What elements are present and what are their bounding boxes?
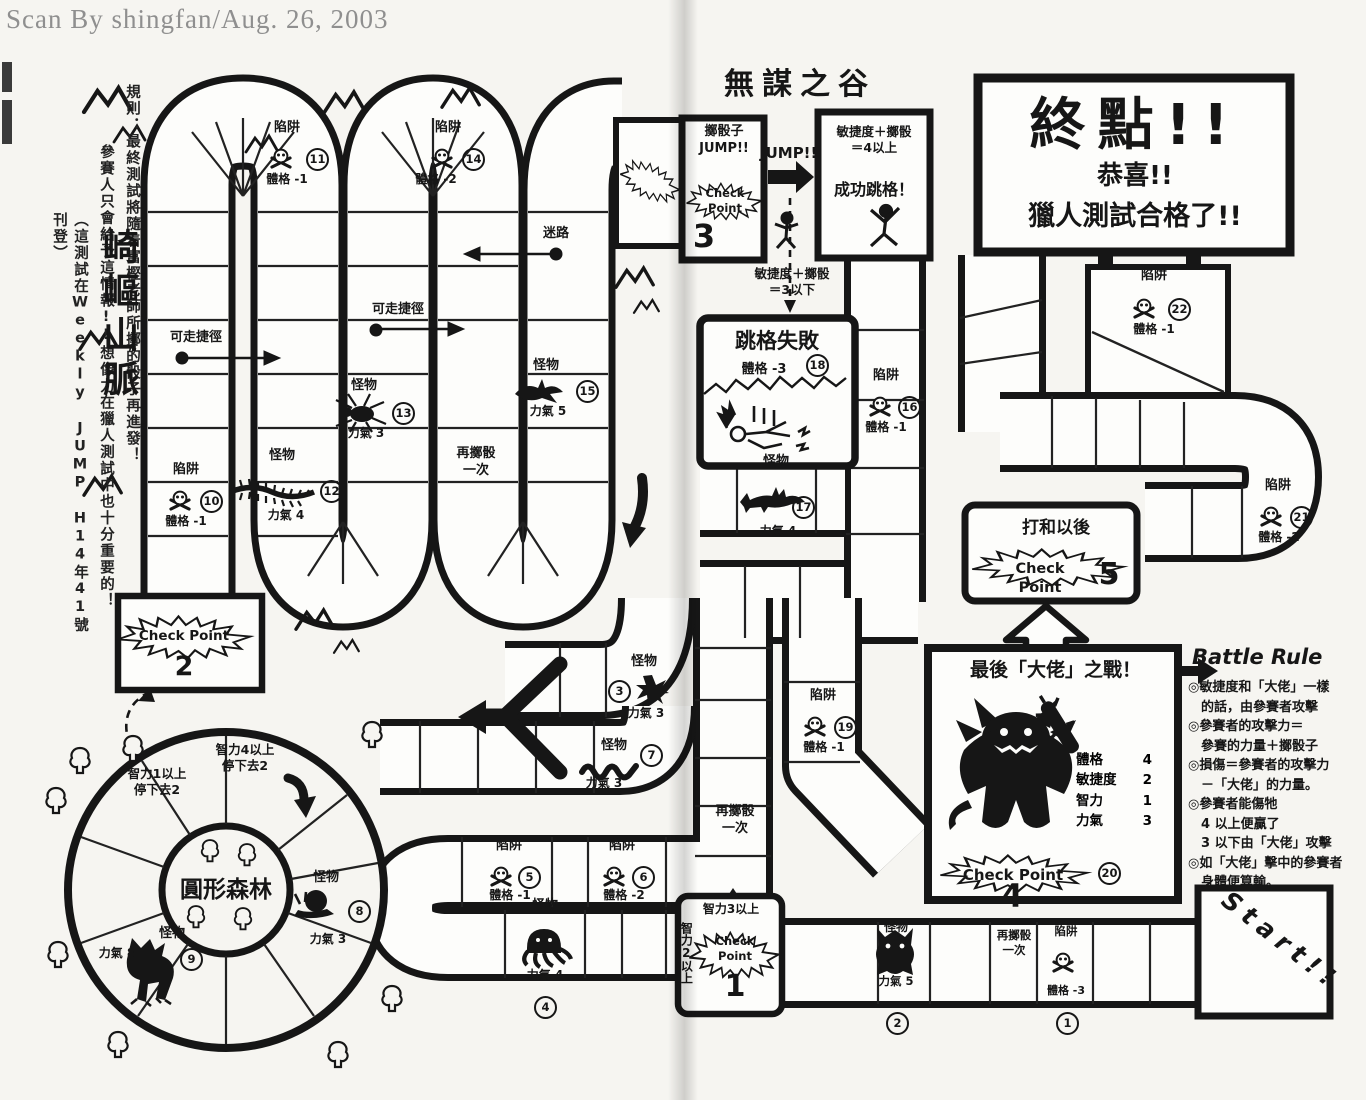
jump-success-condition: 敏捷度＋擲骰 ＝4以上 (820, 124, 928, 156)
goal-congrats: 恭喜!! (990, 160, 1280, 193)
monster-7-power: 力氣 3 (560, 776, 648, 791)
trap-19-label: 陷阱 (782, 688, 864, 705)
trap-10-label: 陷阱 (142, 462, 230, 479)
region-mountain-title: 崎嶇山脈 (94, 228, 140, 404)
square-number-19: 19 (834, 716, 857, 739)
square-number-5: 5 (518, 866, 541, 889)
trap-6-effect: 體格 -2 (582, 888, 666, 903)
reroll-label-2: 再擲骰 一次 (696, 804, 774, 837)
region-valley-title: 無謀之谷 (690, 66, 910, 104)
monster-8-label: 怪物 (284, 870, 368, 887)
trap-1-effect: 體格 -3 (1036, 984, 1096, 998)
boss-stat-key: 敏捷度 (1076, 770, 1117, 790)
battle-rule-body: ◎敏捷度和「大佬」一樣 的話，由參賽者攻擊 ◎參賽者的攻擊力＝ 參賽的力量＋擲骰… (1188, 678, 1366, 893)
square-number-2: 2 (886, 1012, 909, 1035)
goal-passed: 獵人測試合格了!! (985, 200, 1285, 235)
monster-17-label: 怪物 (734, 454, 818, 471)
shortcut-label-2: 可走捷徑 (352, 302, 444, 319)
rules-line-3: （這測試在Weekly JUMP H14年41號刊登） (49, 84, 91, 644)
cp5-label: Check Point (996, 560, 1084, 597)
monster-12-power: 力氣 4 (228, 508, 344, 523)
trap-22-label: 陷阱 (1102, 268, 1206, 285)
reroll-label-1: 再擲骰 一次 (430, 446, 522, 479)
monster-2-power: 力氣 5 (864, 974, 928, 989)
boss-stat-key: 智力 (1076, 791, 1103, 811)
cp4-number: 4 (990, 876, 1034, 917)
square-number-4: 4 (534, 996, 557, 1019)
trap-10-effect: 體格 -1 (144, 514, 228, 529)
monster-13-power: 力氣 3 (320, 426, 412, 441)
scan-credit: Scan By shingfan/Aug. 26, 2003 (6, 2, 388, 37)
region-forest-title: 圓形森林 (166, 876, 286, 905)
trap-16-effect: 體格 -1 (844, 420, 928, 435)
square-number-10: 10 (200, 490, 223, 513)
jump-success-result: 成功跳格！ (824, 180, 924, 200)
square-number-13: 13 (392, 402, 415, 425)
hunter-test-board-page: Scan By shingfan/Aug. 26, 2003 規則：最終測試將隨… (0, 0, 1366, 1100)
cp3-label: Check Point (694, 186, 756, 215)
boss-stat-value: 3 (1143, 811, 1152, 831)
square-number-8: 8 (348, 900, 371, 923)
square-number-14: 14 (462, 148, 485, 171)
page-fold-shadow (668, 0, 698, 1100)
boss-stat-value: 4 (1143, 750, 1152, 770)
trap-21-label: 陷阱 (1238, 478, 1318, 495)
monster-15-label: 怪物 (500, 358, 592, 375)
monster-17-power: 力氣 4 (736, 524, 820, 539)
square-number-15: 15 (576, 380, 599, 403)
cp2-number: 2 (168, 650, 200, 685)
cp5-title: 打和以後 (996, 518, 1116, 540)
square-number-20: 20 (1098, 862, 1121, 885)
boss-stat-key: 體格 (1076, 750, 1103, 770)
square-number-3: 3 (608, 680, 631, 703)
square-number-1: 1 (1056, 1012, 1079, 1035)
cp2-label: Check Point (128, 628, 240, 645)
boss-box-art (928, 648, 1218, 900)
square-number-7: 7 (640, 744, 663, 767)
battle-rule-title: Battle Rule (1192, 644, 1366, 671)
jump-fail-title: 跳格失敗 (712, 328, 842, 355)
trap-11-label: 陷阱 (245, 120, 329, 137)
trap-14-label: 陷阱 (406, 120, 490, 137)
trap-21-effect: 體格 -2 (1240, 530, 1318, 545)
cp1-number: 1 (700, 968, 770, 1006)
trap-16-label: 陷阱 (846, 368, 926, 385)
goal-title: 終點!! (990, 90, 1280, 162)
trap-5-label: 陷阱 (468, 838, 550, 855)
square-number-16: 16 (898, 396, 921, 419)
cp5-number: 5 (1092, 556, 1126, 594)
jump-fail-condition: 敏捷度＋擲骰 ＝3以下 (740, 266, 844, 298)
lost-label: 迷路 (526, 226, 586, 243)
monster-15-power: 力氣 5 (502, 404, 594, 419)
trap-6-label: 陷阱 (578, 838, 666, 855)
square-number-11: 11 (306, 148, 329, 171)
square-number-21: 21 (1290, 506, 1313, 529)
monster-2-label: 怪物 (864, 920, 928, 935)
reroll-label-3: 再擲骰 一次 (986, 928, 1042, 957)
monster-12-label: 怪物 (224, 448, 340, 465)
square-number-17: 17 (792, 496, 815, 519)
boss-stats: 體格4 敏捷度2 智力1 力氣3 (1076, 750, 1152, 831)
boss-stat-key: 力氣 (1076, 811, 1103, 831)
square-number-9: 9 (180, 948, 203, 971)
monster-4-power: 力氣 4 (506, 968, 584, 983)
monster-4-label: 怪物 (506, 898, 584, 915)
monster-9-label: 怪物 (142, 926, 202, 943)
trap-14-effect: 體格 -2 (394, 172, 478, 187)
trap-22-effect: 體格 -1 (1102, 322, 1206, 337)
trap-11-effect: 體格 -1 (245, 172, 329, 187)
forest-rule-1: 智力1以上 停下去2 (110, 766, 204, 798)
jump-arrow-label: JUMP!! (760, 144, 816, 163)
monster-13-label: 怪物 (318, 378, 410, 395)
forest-rule-2: 智力4以上 停下去2 (198, 742, 292, 774)
falling-figure-icon (775, 213, 798, 248)
cp1-top-condition: 智力3以上 (688, 902, 774, 917)
boss-title: 最後「大佬」之戰！ (948, 658, 1163, 682)
cp1-label: Check Point (705, 934, 765, 963)
square-number-12: 12 (320, 480, 343, 503)
shortcut-label-1: 可走捷徑 (150, 330, 242, 347)
boss-stat-value: 2 (1143, 770, 1152, 790)
square-number-18: 18 (806, 354, 829, 377)
trap-19-effect: 體格 -1 (784, 740, 864, 755)
monster-9-power: 力氣 8 (88, 946, 146, 961)
boss-stat-value: 1 (1143, 791, 1152, 811)
square-number-6: 6 (632, 866, 655, 889)
jump-fail-effect: 體格 -3 (714, 362, 814, 379)
square-number-22: 22 (1168, 298, 1191, 321)
trap-1-label: 陷阱 (1038, 924, 1094, 939)
monster-8-power: 力氣 3 (286, 932, 370, 947)
